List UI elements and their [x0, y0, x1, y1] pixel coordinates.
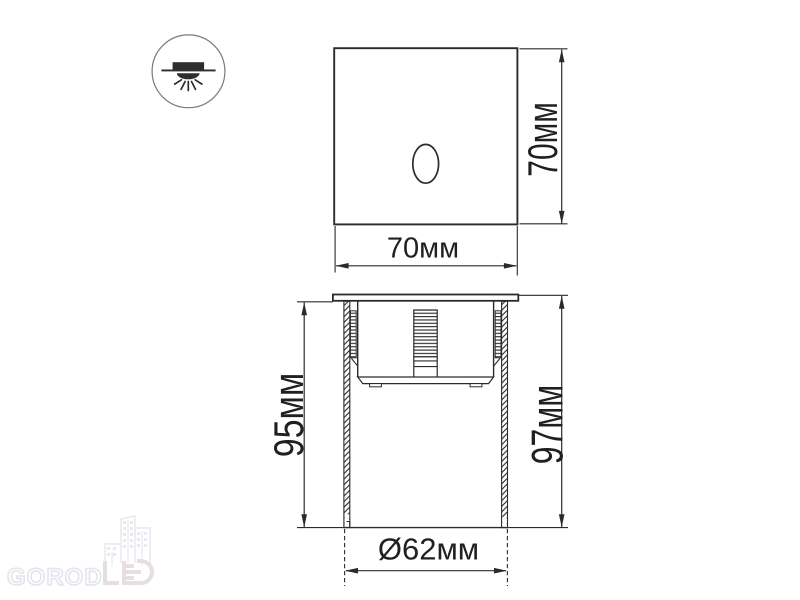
svg-text:70мм: 70мм	[387, 233, 459, 265]
svg-text:Ø62мм: Ø62мм	[378, 532, 479, 567]
svg-text:GOROD: GOROD	[7, 564, 103, 591]
svg-text:97мм: 97мм	[524, 385, 573, 465]
svg-text:70мм: 70мм	[519, 102, 566, 177]
svg-text:95мм: 95мм	[267, 373, 313, 458]
